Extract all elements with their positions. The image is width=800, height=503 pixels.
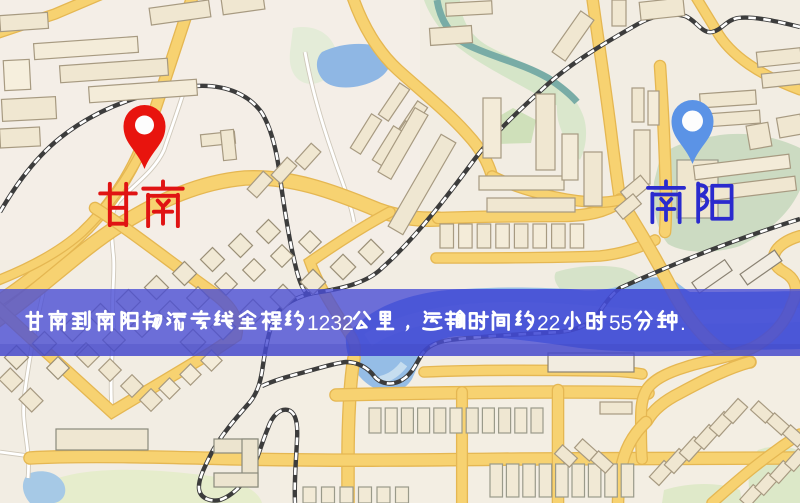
svg-text:55: 55 [609, 312, 632, 335]
svg-text:.: . [680, 312, 686, 335]
svg-text:1232: 1232 [307, 312, 354, 335]
svg-text:22: 22 [537, 312, 560, 335]
